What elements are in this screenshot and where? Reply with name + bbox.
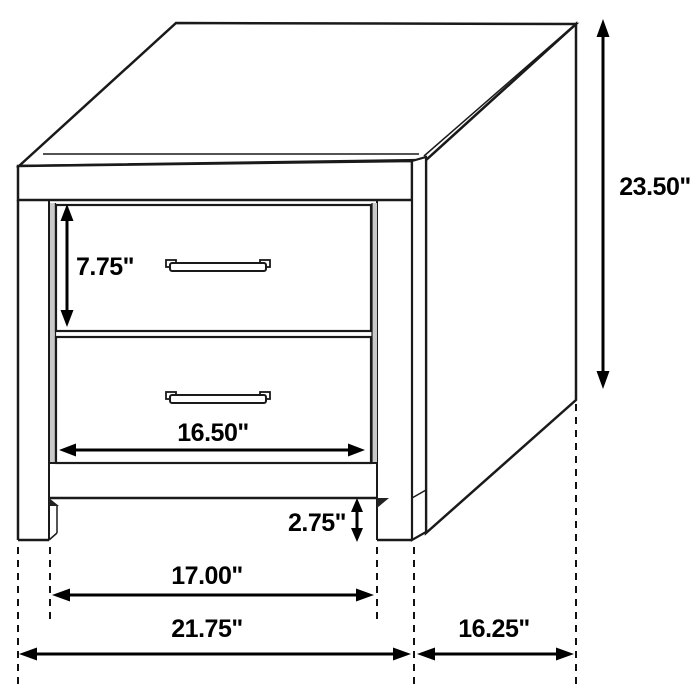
handle-bar — [170, 263, 266, 271]
nightstand-dimension-diagram: 23.50" 7.75" 16.50" 2.75" 17.00" 21.75" — [0, 0, 700, 700]
arrowhead-down — [351, 528, 363, 542]
dimension-foot-height: 2.75" — [288, 498, 363, 542]
dimension-overall-width: 21.75" — [19, 615, 411, 661]
right-stile-shading — [372, 203, 377, 463]
dimension-label-depth: 16.25" — [458, 615, 529, 643]
top-band — [18, 161, 412, 200]
dimension-inner-width: 17.00" — [52, 562, 374, 602]
arrowhead-right — [556, 648, 574, 661]
arrowhead-left — [52, 589, 70, 602]
dimension-label-overall-height: 23.50" — [619, 173, 690, 201]
arrowhead-down — [597, 371, 610, 389]
arrowhead-right — [356, 589, 374, 602]
dimension-diagram-canvas: 23.50" 7.75" 16.50" 2.75" 17.00" 21.75" — [0, 0, 700, 700]
dimension-depth: 16.25" — [417, 615, 574, 661]
dimension-label-overall-width: 21.75" — [171, 615, 242, 643]
arrowhead-up — [597, 19, 610, 37]
right-leg-shadow-wedge — [377, 498, 389, 508]
dimension-label-drawer-width: 16.50" — [177, 419, 248, 447]
arrowhead-up — [351, 498, 363, 512]
dimension-label-inner-width: 17.00" — [171, 562, 242, 590]
corner-strip — [412, 157, 426, 540]
dimension-label-drawer-height: 7.75" — [76, 253, 134, 281]
arrowhead-right — [393, 648, 411, 661]
dimension-overall-height: 23.50" — [597, 19, 691, 389]
dimension-label-foot-height: 2.75" — [288, 509, 346, 537]
arrowhead-left — [19, 648, 37, 661]
arrowhead-left — [417, 648, 435, 661]
left-stile-shading — [50, 203, 55, 463]
nightstand-drawing — [18, 23, 576, 540]
handle-bar — [170, 395, 266, 403]
left-leg-chamfer — [49, 533, 57, 540]
